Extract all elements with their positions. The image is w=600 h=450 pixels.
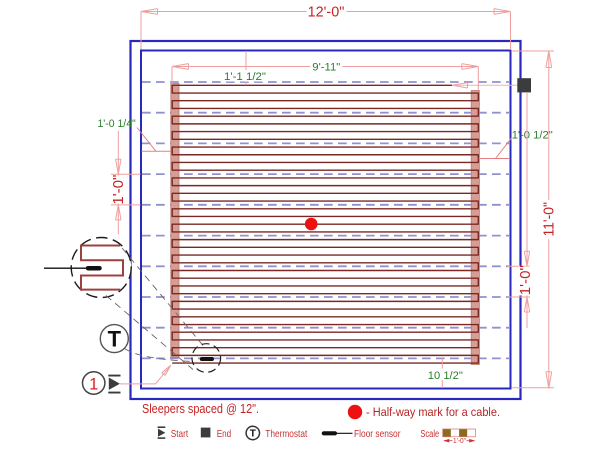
svg-text:11'-0": 11'-0" — [542, 202, 558, 237]
svg-text:1'-0 1/2": 1'-0 1/2" — [512, 130, 553, 142]
svg-text:Thermostat: Thermostat — [265, 428, 307, 440]
svg-text:End: End — [217, 428, 232, 440]
svg-text:10 1/2": 10 1/2" — [428, 370, 463, 382]
svg-text:1'-0": 1'-0" — [111, 175, 127, 205]
svg-text:Floor sensor: Floor sensor — [354, 428, 401, 440]
svg-text:1'-0": 1'-0" — [518, 265, 534, 295]
svg-text:Sleepers spaced @ 12".: Sleepers spaced @ 12". — [142, 402, 259, 416]
svg-text:Scale: Scale — [420, 429, 439, 440]
svg-text:12'-0": 12'-0" — [308, 5, 345, 21]
svg-text:Start: Start — [171, 428, 189, 440]
svg-text:9'-11": 9'-11" — [312, 61, 340, 73]
svg-text:1'-0 1/4": 1'-0 1/4" — [97, 118, 135, 130]
svg-text:1: 1 — [89, 375, 98, 393]
svg-text:1'-1 1/2": 1'-1 1/2" — [224, 71, 266, 83]
svg-text:- Half-way mark for a cable.: - Half-way mark for a cable. — [366, 405, 500, 419]
svg-text:T: T — [250, 429, 256, 440]
svg-text:T: T — [108, 326, 122, 351]
svg-text:1'-0": 1'-0" — [453, 438, 466, 445]
